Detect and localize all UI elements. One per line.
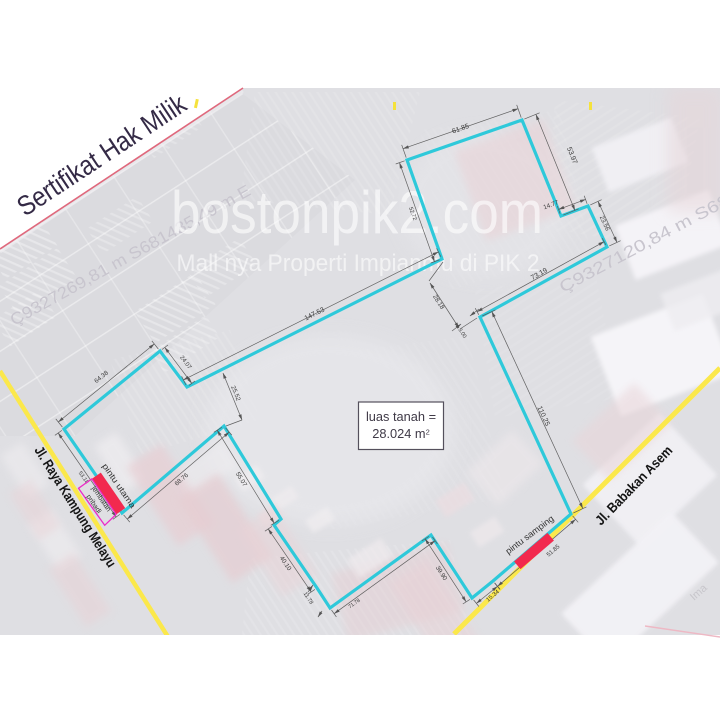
svg-text:luas tanah =: luas tanah = [366, 409, 436, 424]
svg-text:bostonpik2.com: bostonpik2.com [171, 179, 543, 246]
svg-text:28.024 m2: 28.024 m2 [372, 426, 430, 441]
svg-text:Mall nya Properti Impianmu di: Mall nya Properti Impianmu di PIK 2 [177, 250, 540, 277]
